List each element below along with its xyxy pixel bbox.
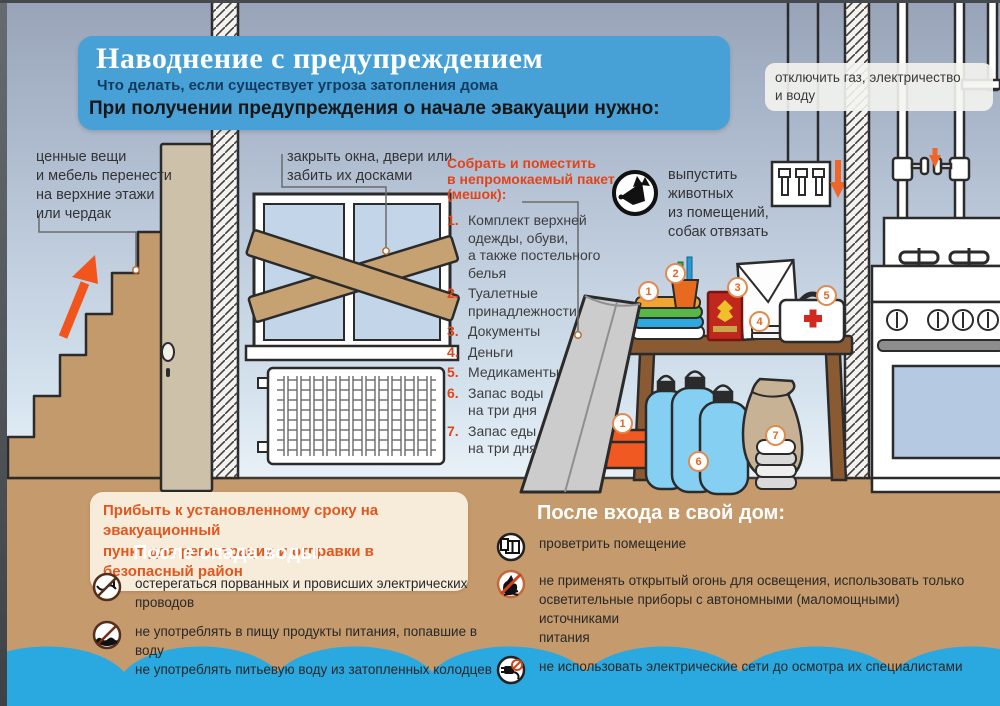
badge-clothes: 1 <box>638 281 659 302</box>
badge-money: 4 <box>749 311 770 332</box>
pack-item-text: Комплект верхней одежды, обуви, а также … <box>468 212 600 282</box>
animals-label: выпустить животных из помещений, собак о… <box>668 166 769 243</box>
after-water-item-text: остерегаться порванных и провисших элект… <box>135 572 502 613</box>
after-home-item: не применять открытый огонь для освещени… <box>496 569 971 648</box>
windows-label: закрыть окна, двери или забить их доскам… <box>287 148 452 186</box>
after-home-section: После входа в свой дом: проветрить помещ… <box>496 502 971 685</box>
photo-edge-left <box>0 0 7 706</box>
pack-item-text: Деньги <box>468 344 513 362</box>
canned-food <box>756 440 796 489</box>
title-box: Наводнение с предупреждением Что делать,… <box>78 36 730 130</box>
water-bottles <box>646 372 748 495</box>
pack-item: 5.Медикаменты <box>447 364 600 382</box>
badge-toiletries: 2 <box>665 263 686 284</box>
pack-item-text: Запас воды на три дня <box>468 385 544 420</box>
badge-food: 7 <box>765 425 786 446</box>
pack-item-number: 3. <box>447 323 468 341</box>
documents-passport <box>708 292 742 340</box>
pack-item-text: Туалетные принадлежности <box>468 285 577 320</box>
after-home-item-text: проветрить помещение <box>539 532 686 554</box>
valuables-label: ценные вещи и мебель перенести на верхни… <box>36 148 172 225</box>
after-water-section: После спада воды: остерегаться порванных… <box>92 542 502 679</box>
pack-item-text: Запас еды на три дня <box>468 423 537 458</box>
pack-item-number: 1. <box>447 212 468 282</box>
after-water-item: остерегаться порванных и провисших элект… <box>92 572 502 613</box>
poster-title: Наводнение с предупреждением <box>96 42 730 76</box>
pack-item-number: 5. <box>447 364 468 382</box>
pack-item-number: 6. <box>447 385 468 420</box>
after-water-item-text: не употреблять в пищу продукты питания, … <box>135 620 502 680</box>
ventilate-window-icon <box>496 532 526 562</box>
pack-item: 2.Туалетные принадлежности <box>447 285 600 320</box>
flood-warning-poster: Наводнение с предупреждением Что делать,… <box>0 0 1000 706</box>
utilities-label: отключить газ, электричество и воду <box>765 63 993 111</box>
gas-valve-1 <box>893 158 928 180</box>
pack-item: 6.Запас воды на три дня <box>447 385 600 420</box>
pack-item-number: 2. <box>447 285 468 320</box>
boarded-window <box>246 194 459 360</box>
gas-stove <box>872 218 1000 492</box>
after-home-item-text: не применять открытый огонь для освещени… <box>539 569 971 648</box>
dog-icon <box>612 170 658 221</box>
pack-item-text: Документы <box>468 323 540 341</box>
power-off-arrow <box>830 160 846 198</box>
radiator <box>258 368 444 464</box>
broken-wires-icon <box>92 572 122 602</box>
after-water-heading: После спада воды: <box>133 542 502 565</box>
after-home-item: проветрить помещение <box>496 532 971 562</box>
pack-item: 7.Запас еды на три дня <box>447 423 600 458</box>
badge-shoebox: 1 <box>612 413 633 434</box>
badge-medicine: 5 <box>816 285 837 306</box>
badge-water: 6 <box>688 451 709 472</box>
pack-item-text: Медикаменты <box>468 364 559 382</box>
no-electricity-icon <box>496 655 526 685</box>
pack-item: 1.Комплект верхней одежды, обуви, а такж… <box>447 212 600 282</box>
no-open-fire-icon <box>496 569 526 599</box>
pack-item-number: 7. <box>447 423 468 458</box>
after-home-item: не использовать электрические сети до ос… <box>496 655 971 685</box>
pack-item: 3.Документы <box>447 323 600 341</box>
after-water-item: не употреблять в пищу продукты питания, … <box>92 620 502 680</box>
poster-instruction: При получении предупреждения о начале эв… <box>89 98 730 120</box>
pack-item-number: 4. <box>447 344 468 362</box>
pack-item: 4.Деньги <box>447 344 600 362</box>
no-flood-water-icon <box>92 620 122 650</box>
poster-subtitle: Что делать, если существует угроза затоп… <box>97 77 730 94</box>
after-home-item-text: не использовать электрические сети до ос… <box>539 655 963 677</box>
pack-list-heading: Собрать и поместить в непромокаемый паке… <box>447 156 615 203</box>
pack-list: 1.Комплект верхней одежды, обуви, а такж… <box>447 212 600 461</box>
badge-documents: 3 <box>727 277 748 298</box>
after-home-heading: После входа в свой дом: <box>537 502 971 525</box>
photo-edge-top <box>0 0 1000 3</box>
gas-valve-2 <box>934 158 969 180</box>
